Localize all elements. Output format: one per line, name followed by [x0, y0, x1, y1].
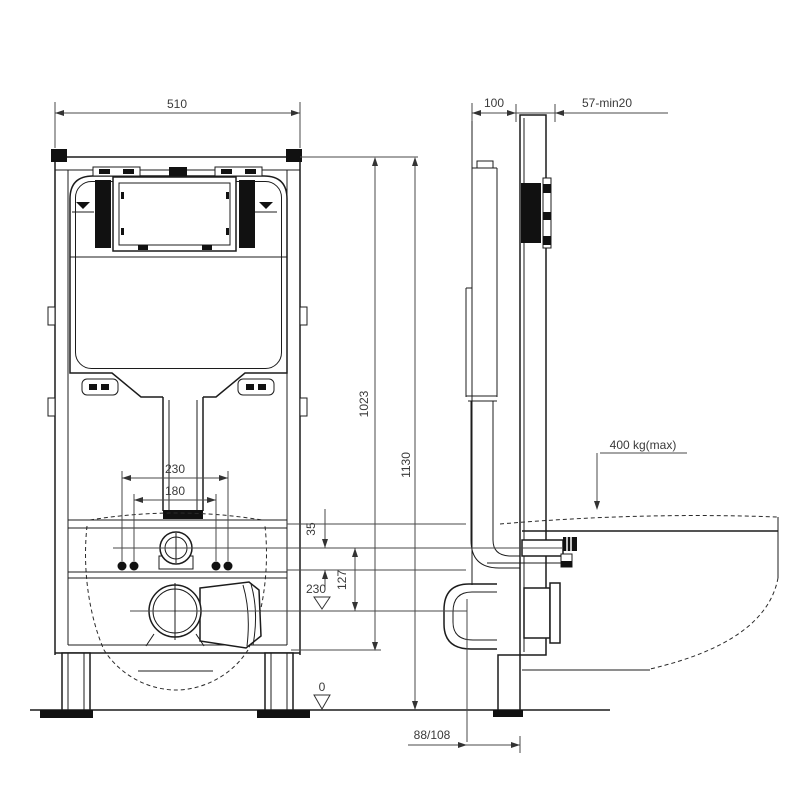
fixing-bolt	[212, 562, 221, 571]
technical-drawing-canvas: 510 1023 1130 230 180 35 127	[0, 0, 800, 800]
side-tab	[300, 398, 307, 416]
access-shaft	[113, 177, 236, 251]
level-0-triangle	[314, 695, 330, 709]
dim-510: 510	[55, 97, 300, 148]
side-view-cistern	[466, 115, 520, 585]
wall-bracket-right	[286, 149, 302, 162]
drain-flange	[550, 583, 560, 643]
water-level-mark	[76, 202, 90, 209]
dim-230-label: 230	[165, 462, 185, 476]
fixing-bolt	[224, 562, 233, 571]
water-level-mark	[259, 202, 273, 209]
side-foot	[498, 655, 520, 710]
level-markers: 230 0	[306, 582, 330, 709]
dim-180-label: 180	[165, 484, 185, 498]
dim-drain-offset: 88/108	[408, 728, 520, 753]
front-view-flush-pipe	[163, 397, 203, 519]
dim-57min20-label: 57-min20	[582, 96, 632, 110]
dim-127-label: 127	[335, 570, 349, 590]
drawing-svg: 510 1023 1130 230 180 35 127	[0, 0, 800, 800]
side-tab	[48, 398, 55, 416]
dim-1130-label: 1130	[399, 452, 413, 478]
level-230-label: 230	[306, 582, 326, 596]
side-foot-plate	[493, 710, 523, 717]
side-tab	[300, 307, 307, 325]
dim-35-label: 35	[304, 522, 318, 536]
threaded-rod	[563, 537, 577, 551]
drain-socket	[524, 588, 550, 638]
foot-right	[265, 653, 293, 711]
foot-plate-right	[257, 710, 310, 718]
flush-opening	[521, 183, 541, 243]
wall-bracket-left	[51, 149, 67, 162]
foot-left	[62, 653, 90, 711]
dim-1023-label: 1023	[357, 390, 371, 417]
front-view-cistern	[70, 167, 287, 397]
max-load-label: 400 kg(max)	[610, 438, 677, 452]
dim-510-label: 510	[167, 97, 187, 111]
dim-heights: 1023 1130	[291, 157, 418, 710]
dim-100-label: 100	[484, 96, 504, 110]
tank-bracket-left	[82, 379, 118, 395]
front-view-rails	[68, 520, 466, 578]
level-0-label: 0	[319, 680, 326, 694]
level-230-triangle	[314, 597, 330, 609]
front-view-drain-offset-pipe	[200, 582, 261, 648]
fixing-bolt	[118, 562, 127, 571]
side-view-pan-bracket	[487, 537, 577, 567]
fixing-bolt	[130, 562, 139, 571]
mount-bar-right	[239, 180, 255, 248]
dim-depth: 100 57-min20	[472, 96, 668, 122]
load-annotation: 400 kg(max)	[594, 438, 687, 510]
side-tab	[48, 307, 55, 325]
dim-88-108-label: 88/108	[414, 728, 451, 742]
foot-plate-left	[40, 710, 93, 718]
side-view-flush-plate	[521, 178, 551, 248]
tank-bracket-right	[238, 379, 274, 395]
mount-bar-left	[95, 180, 111, 248]
front-view-feet	[62, 653, 293, 711]
